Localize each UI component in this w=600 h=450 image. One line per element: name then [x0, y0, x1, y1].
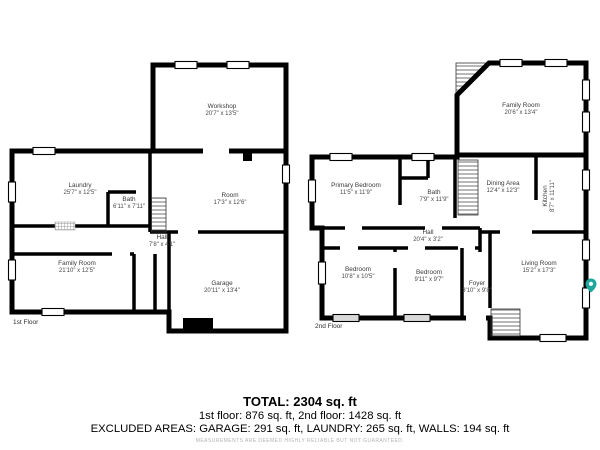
- excluded-areas-text: EXCLUDED AREAS: GARAGE: 291 sq. ft, LAUN…: [0, 423, 600, 435]
- entry-door-opening: [466, 315, 486, 322]
- floor1-tag: 1st Floor: [13, 319, 38, 326]
- workshop-door-opening: [203, 147, 229, 155]
- entry-stairs: [491, 309, 520, 336]
- disclaimer-text: MEASUREMENTS ARE DEEMED HIGHLY RELIABLE …: [0, 438, 600, 444]
- total-area-text: TOTAL: 2304 sq. ft: [0, 394, 600, 409]
- area-summary: TOTAL: 2304 sq. ft 1st floor: 876 sq. ft…: [0, 394, 600, 444]
- floor1-stairs: [152, 198, 167, 232]
- floor1-door-threshold: [55, 222, 75, 230]
- floor-areas-text: 1st floor: 876 sq. ft, 2nd floor: 1428 s…: [0, 410, 600, 422]
- watermark-logo-icon: [585, 278, 597, 293]
- floorplan-drawing: [0, 0, 600, 450]
- floor2-stairs: [458, 160, 478, 215]
- floor1-walls: [9, 62, 290, 332]
- garage-door: [183, 318, 213, 331]
- floor2-walls: [309, 60, 590, 342]
- floor2-tag: 2nd Floor: [315, 323, 342, 330]
- floorplan-page: Workshop 20'7" x 13'5" Laundry 25'7" x 1…: [0, 0, 600, 450]
